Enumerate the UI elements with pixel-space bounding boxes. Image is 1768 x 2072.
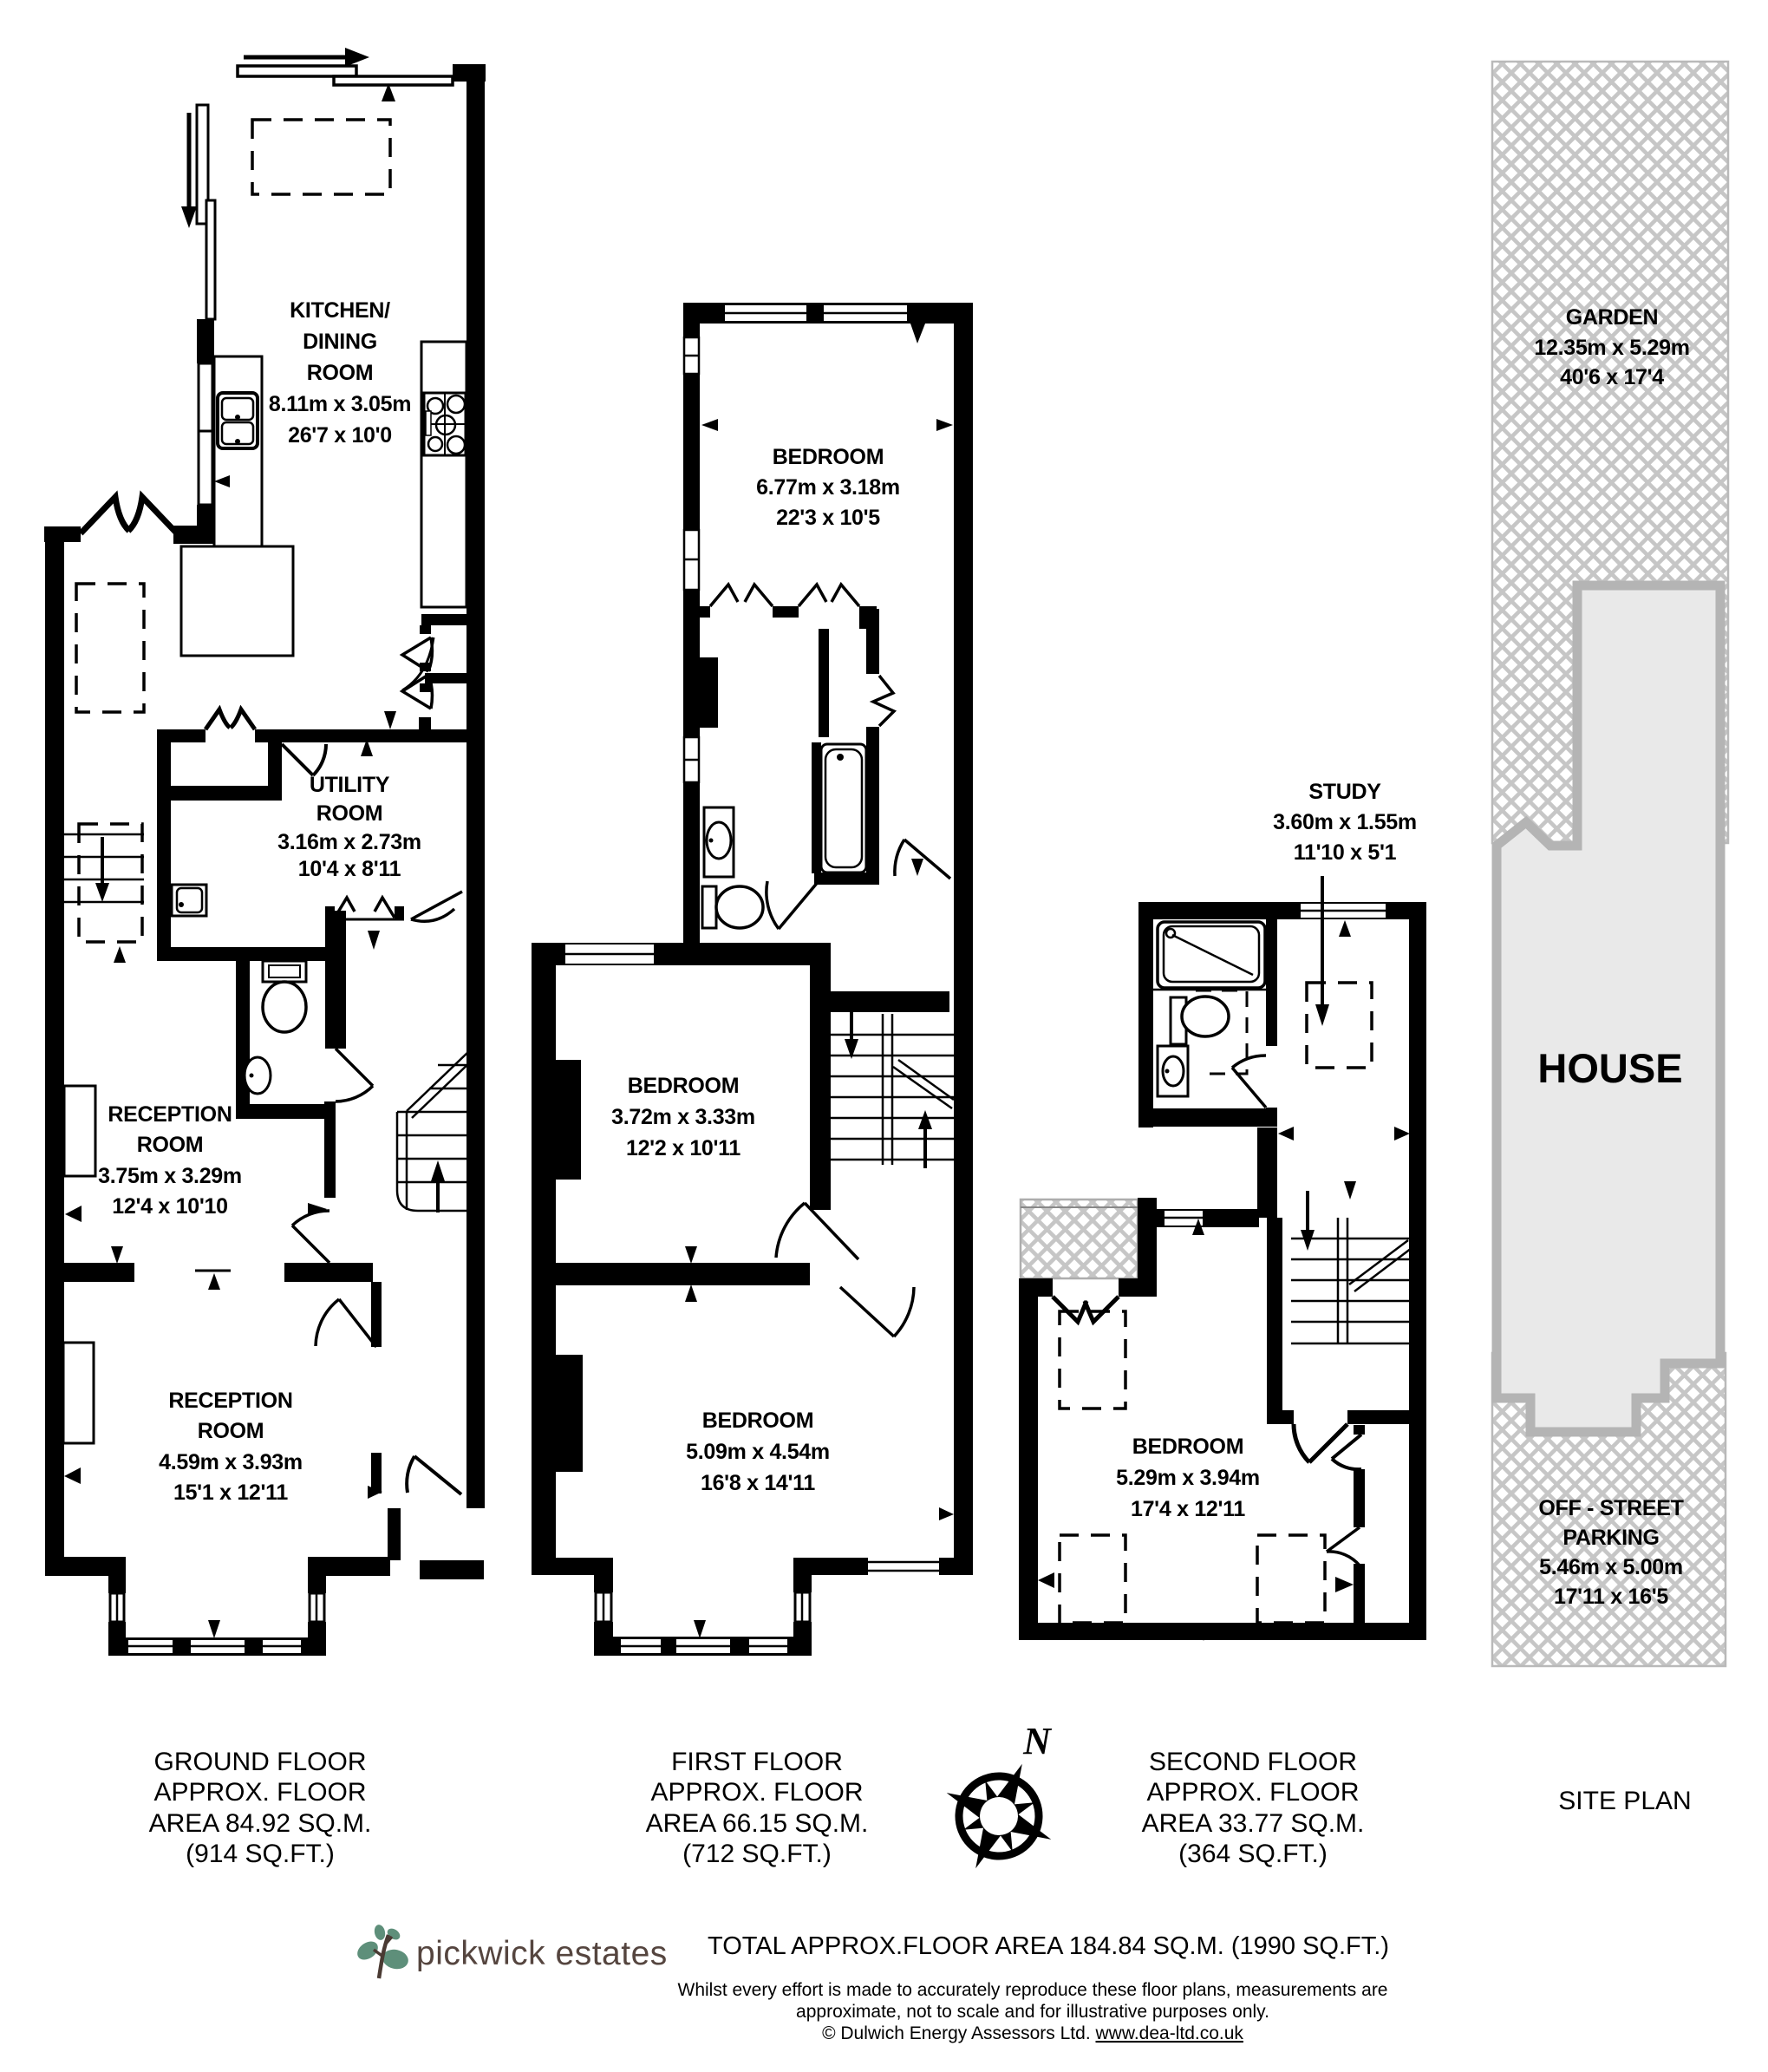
- svg-text:4.59m x 3.93m: 4.59m x 3.93m: [159, 1450, 303, 1474]
- svg-text:OFF - STREET: OFF - STREET: [1538, 1496, 1683, 1520]
- svg-text:3.16m x 2.73m: 3.16m x 2.73m: [277, 830, 421, 854]
- svg-text:BEDROOM: BEDROOM: [628, 1074, 739, 1098]
- svg-text:APPROX. FLOOR: APPROX. FLOOR: [153, 1778, 366, 1807]
- svg-text:(364 SQ.FT.): (364 SQ.FT.): [1178, 1840, 1328, 1868]
- svg-text:17'11 x 16'5: 17'11 x 16'5: [1554, 1585, 1668, 1609]
- svg-text:(914 SQ.FT.): (914 SQ.FT.): [186, 1840, 335, 1868]
- svg-text:SITE PLAN: SITE PLAN: [1558, 1787, 1691, 1815]
- svg-text:5.29m x 3.94m: 5.29m x 3.94m: [1116, 1466, 1260, 1490]
- svg-text:AREA 84.92 SQ.M.: AREA 84.92 SQ.M.: [149, 1809, 372, 1838]
- svg-text:40'6 x 17'4: 40'6 x 17'4: [1560, 365, 1664, 389]
- svg-text:STUDY: STUDY: [1308, 780, 1381, 804]
- svg-text:(712 SQ.FT.): (712 SQ.FT.): [682, 1840, 832, 1868]
- svg-text:RECEPTION: RECEPTION: [168, 1389, 292, 1413]
- svg-text:GROUND FLOOR: GROUND FLOOR: [153, 1748, 366, 1776]
- svg-text:AREA 66.15 SQ.M.: AREA 66.15 SQ.M.: [646, 1809, 869, 1838]
- svg-text:ROOM: ROOM: [198, 1419, 264, 1443]
- svg-text:6.77m x 3.18m: 6.77m x 3.18m: [756, 475, 900, 500]
- svg-text:22'3 x 10'5: 22'3 x 10'5: [776, 506, 880, 530]
- svg-text:ROOM: ROOM: [137, 1133, 204, 1157]
- svg-text:ROOM: ROOM: [307, 361, 374, 385]
- svg-text:BEDROOM: BEDROOM: [773, 445, 884, 469]
- svg-text:12'4 x 10'10: 12'4 x 10'10: [112, 1194, 227, 1219]
- svg-text:5.46m x 5.00m: 5.46m x 5.00m: [1539, 1555, 1683, 1579]
- svg-text:12'2 x 10'11: 12'2 x 10'11: [626, 1136, 740, 1160]
- svg-text:pickwick estates: pickwick estates: [416, 1935, 668, 1972]
- svg-text:UTILITY: UTILITY: [310, 773, 390, 797]
- svg-text:PARKING: PARKING: [1562, 1526, 1659, 1550]
- svg-text:BEDROOM: BEDROOM: [702, 1409, 813, 1433]
- svg-text:17'4 x 12'11: 17'4 x 12'11: [1131, 1497, 1245, 1521]
- svg-text:3.60m x 1.55m: 3.60m x 1.55m: [1273, 810, 1417, 834]
- svg-text:AREA 33.77 SQ.M.: AREA 33.77 SQ.M.: [1142, 1809, 1365, 1838]
- svg-text:11'10 x 5'1: 11'10 x 5'1: [1294, 840, 1397, 865]
- svg-text:RECEPTION: RECEPTION: [108, 1102, 232, 1127]
- svg-text:KITCHEN/: KITCHEN/: [290, 298, 390, 323]
- svg-text:Whilst every effort is made to: Whilst every effort is made to accuratel…: [678, 1980, 1388, 2000]
- svg-text:ROOM: ROOM: [316, 801, 383, 826]
- svg-text:TOTAL APPROX.FLOOR AREA 184.84: TOTAL APPROX.FLOOR AREA 184.84 SQ.M. (19…: [708, 1932, 1389, 1960]
- svg-text:10'4 x 8'11: 10'4 x 8'11: [298, 857, 401, 881]
- svg-text:15'1 x 12'11: 15'1 x 12'11: [173, 1480, 288, 1505]
- svg-text:3.72m x 3.33m: 3.72m x 3.33m: [611, 1105, 755, 1129]
- svg-text:APPROX. FLOOR: APPROX. FLOOR: [650, 1778, 863, 1807]
- svg-text:16'8 x 14'11: 16'8 x 14'11: [701, 1471, 815, 1495]
- svg-text:12.35m x 5.29m: 12.35m x 5.29m: [1534, 336, 1689, 360]
- svg-text:BEDROOM: BEDROOM: [1132, 1435, 1243, 1459]
- svg-text:approximate, not to scale and: approximate, not to scale and for illust…: [796, 2002, 1269, 2022]
- svg-text:APPROX. FLOOR: APPROX. FLOOR: [1146, 1778, 1359, 1807]
- svg-text:FIRST FLOOR: FIRST FLOOR: [671, 1748, 843, 1776]
- svg-text:3.75m x 3.29m: 3.75m x 3.29m: [98, 1164, 242, 1188]
- svg-text:GARDEN: GARDEN: [1566, 305, 1659, 330]
- svg-text:HOUSE: HOUSE: [1537, 1045, 1682, 1091]
- svg-text:© Dulwich Energy Assessor: © Dulwich Energy Assessors Ltd. www.dea-…: [822, 2023, 1243, 2043]
- svg-text:5.09m x 4.54m: 5.09m x 4.54m: [686, 1440, 830, 1464]
- svg-text:26'7 x 10'0: 26'7 x 10'0: [288, 423, 392, 448]
- svg-text:8.11m x 3.05m: 8.11m x 3.05m: [269, 392, 411, 416]
- svg-text:N: N: [1022, 1720, 1053, 1762]
- svg-text:DINING: DINING: [303, 330, 377, 354]
- svg-text:SECOND FLOOR: SECOND FLOOR: [1149, 1748, 1357, 1776]
